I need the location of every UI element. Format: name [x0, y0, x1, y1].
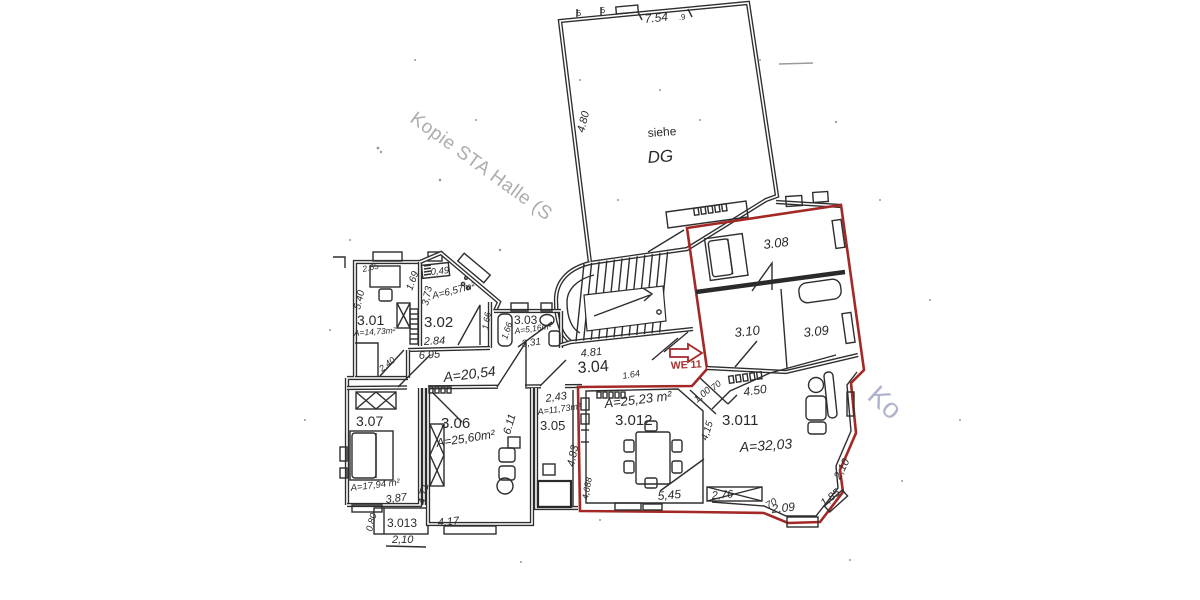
svg-text:3.013: 3.013: [387, 516, 417, 530]
svg-text:siehe: siehe: [647, 124, 677, 140]
svg-text:3.06: 3.06: [441, 415, 470, 432]
svg-text:3.07: 3.07: [356, 413, 383, 429]
svg-text:4.17: 4.17: [437, 515, 460, 529]
svg-text:WE 11: WE 11: [671, 358, 703, 372]
svg-text:DG: DG: [647, 146, 674, 167]
svg-text:3.09: 3.09: [803, 322, 830, 340]
svg-text:7.54: 7.54: [644, 10, 669, 26]
svg-text:3.012: 3.012: [615, 412, 653, 429]
svg-text:5,45: 5,45: [657, 487, 682, 503]
svg-text:3.10: 3.10: [734, 322, 761, 340]
svg-text:2,76: 2,76: [710, 488, 734, 502]
svg-text:4.81: 4.81: [580, 346, 603, 360]
svg-text:2,10: 2,10: [391, 534, 414, 546]
svg-text:2.84: 2.84: [423, 335, 446, 348]
svg-text:3.05: 3.05: [540, 418, 565, 433]
svg-text:3.02: 3.02: [424, 314, 453, 331]
svg-text:3.08: 3.08: [763, 234, 791, 252]
svg-text:3.011: 3.011: [722, 412, 758, 429]
svg-text:0,49: 0,49: [430, 265, 450, 278]
svg-text:3.04: 3.04: [577, 358, 609, 377]
